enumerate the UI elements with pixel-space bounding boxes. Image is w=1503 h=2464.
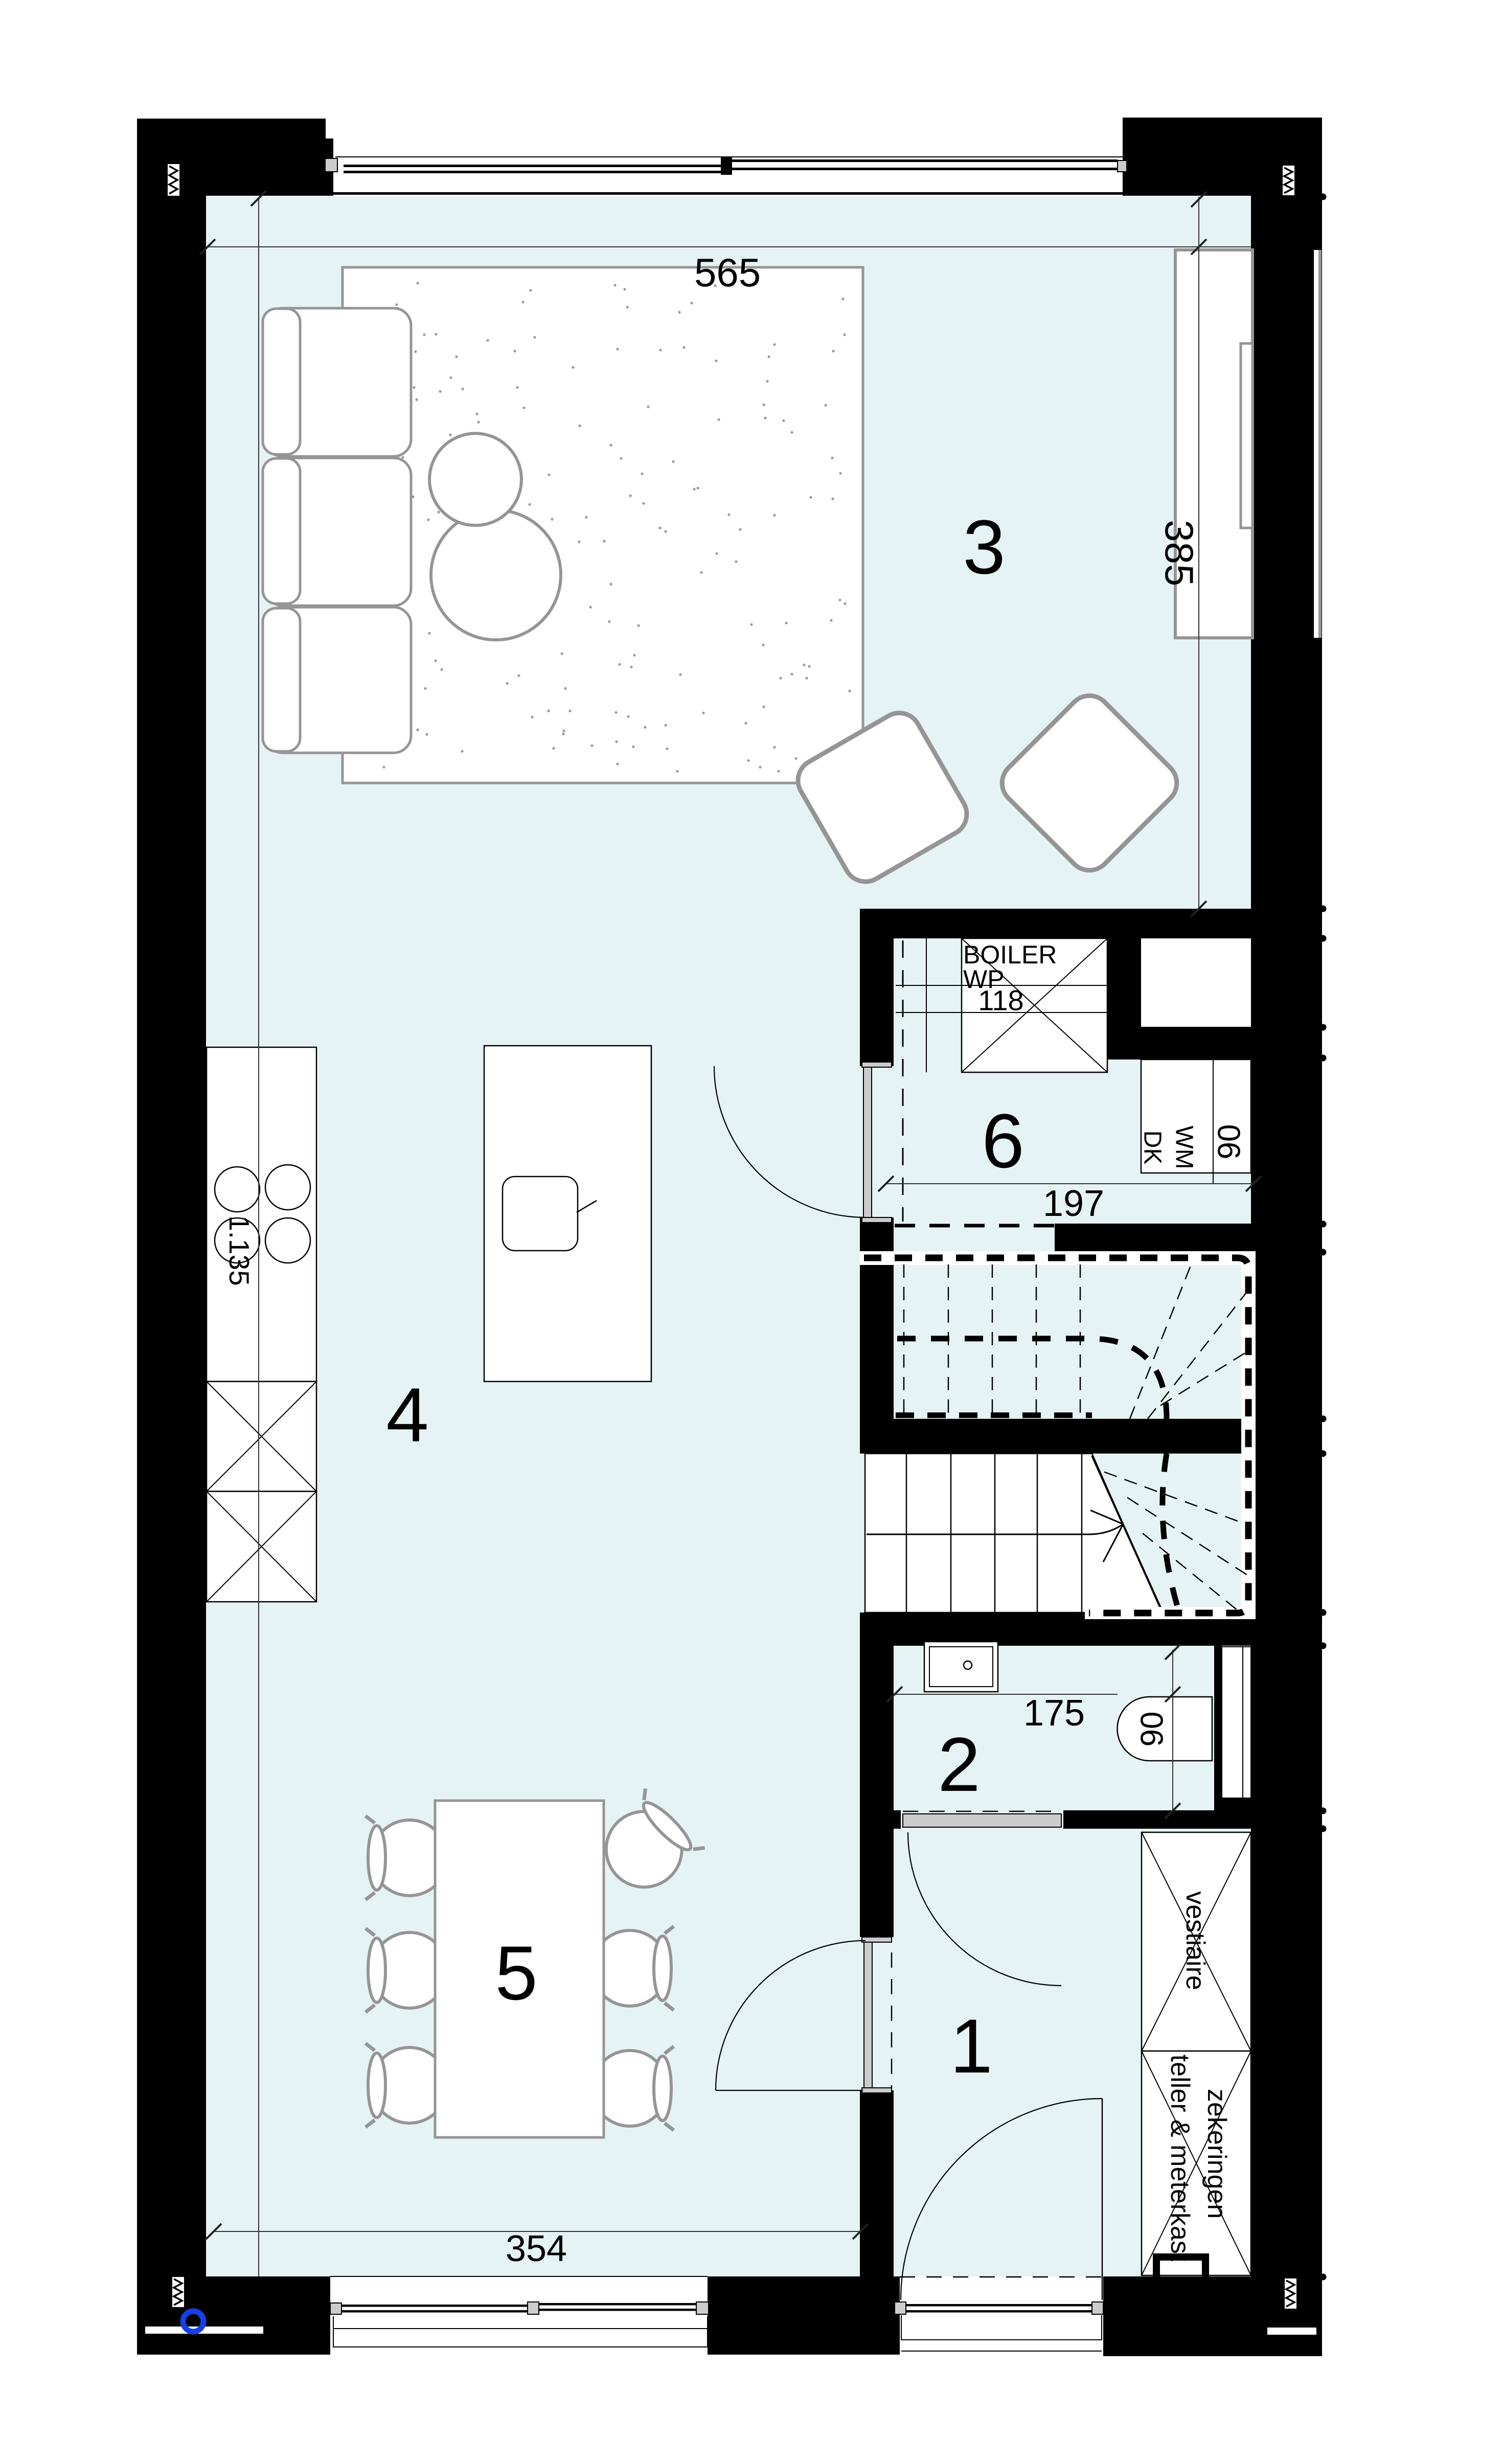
svg-text:565: 565 (694, 250, 761, 295)
svg-text:zekeringen: zekeringen (1202, 2089, 1232, 2219)
svg-text:354: 354 (506, 2228, 567, 2269)
svg-text:vestiaire: vestiaire (1180, 1891, 1210, 1990)
svg-text:385: 385 (1157, 520, 1202, 586)
svg-text:5: 5 (495, 1930, 537, 2016)
svg-text:6: 6 (982, 1098, 1024, 1184)
svg-text:90: 90 (1212, 1124, 1247, 1160)
svg-text:1.135: 1.135 (223, 1215, 255, 1286)
svg-text:118: 118 (978, 984, 1023, 1017)
svg-text:197: 197 (1043, 1183, 1104, 1224)
svg-text:4: 4 (386, 1372, 428, 1458)
svg-text:175: 175 (1023, 1693, 1085, 1734)
svg-text:WM: WM (1171, 1125, 1198, 1169)
svg-text:teller & meterkast: teller & meterkast (1165, 2055, 1195, 2262)
svg-text:1: 1 (950, 2003, 992, 2089)
svg-text:DK: DK (1139, 1131, 1166, 1165)
svg-text:2: 2 (938, 1721, 980, 1807)
svg-text:90: 90 (1135, 1712, 1170, 1747)
svg-text:3: 3 (963, 504, 1005, 590)
